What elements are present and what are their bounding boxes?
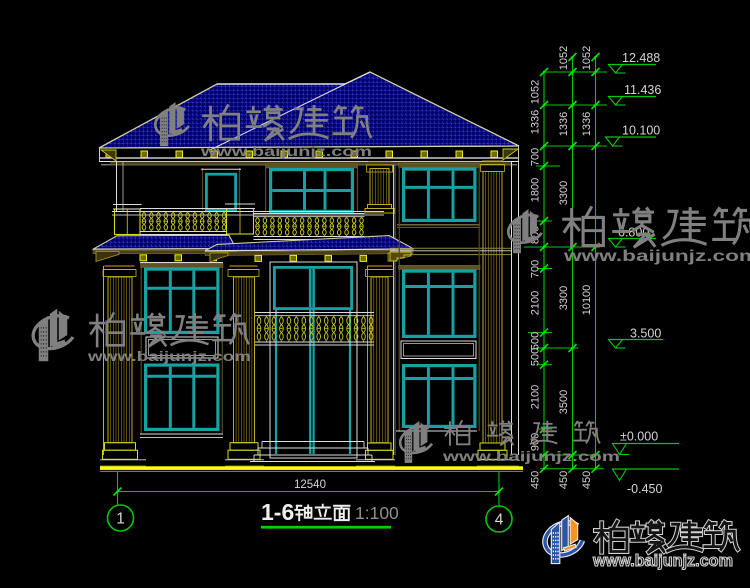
svg-text:450: 450 [581,471,593,489]
svg-text:4: 4 [495,512,504,529]
svg-text:±0.000: ±0.000 [620,430,658,444]
svg-text:1052: 1052 [581,46,593,70]
svg-text:1800: 1800 [530,178,542,202]
svg-text:1336: 1336 [558,112,570,136]
svg-text:700: 700 [530,148,542,166]
svg-text:www.baijunjz.com: www.baijunjz.com [592,552,733,570]
svg-text:www.baijunjz.com: www.baijunjz.com [563,248,750,265]
svg-text:10.100: 10.100 [622,124,660,138]
svg-text:1: 1 [116,511,125,528]
svg-text:11.436: 11.436 [624,83,661,97]
svg-text:1336: 1336 [581,112,593,136]
svg-text:1:100: 1:100 [355,503,399,523]
svg-text:3.500: 3.500 [630,327,661,341]
svg-text:3300: 3300 [558,286,570,310]
svg-text:500: 500 [530,332,542,350]
svg-text:www.baijunjz.com: www.baijunjz.com [441,449,620,464]
svg-text:3300: 3300 [558,181,570,205]
svg-text:2100: 2100 [530,385,542,409]
svg-text:1-6: 1-6 [261,499,294,525]
svg-text:-0.450: -0.450 [627,482,662,496]
svg-text:www.baijunjz.com: www.baijunjz.com [200,143,372,159]
svg-text:12540: 12540 [294,479,326,491]
svg-text:450: 450 [530,471,542,489]
svg-text:12.488: 12.488 [622,51,660,65]
svg-text:500: 500 [530,348,542,366]
svg-text:10100: 10100 [581,285,593,316]
svg-text:450: 450 [558,471,570,489]
svg-text:1336: 1336 [530,110,542,134]
svg-text:3500: 3500 [558,390,570,414]
svg-text:www.baijunjz.com: www.baijunjz.com [87,349,251,364]
svg-text:1052: 1052 [558,46,570,70]
svg-text:2100: 2100 [530,291,542,315]
svg-text:1052: 1052 [530,80,542,104]
svg-text:700: 700 [530,260,542,278]
